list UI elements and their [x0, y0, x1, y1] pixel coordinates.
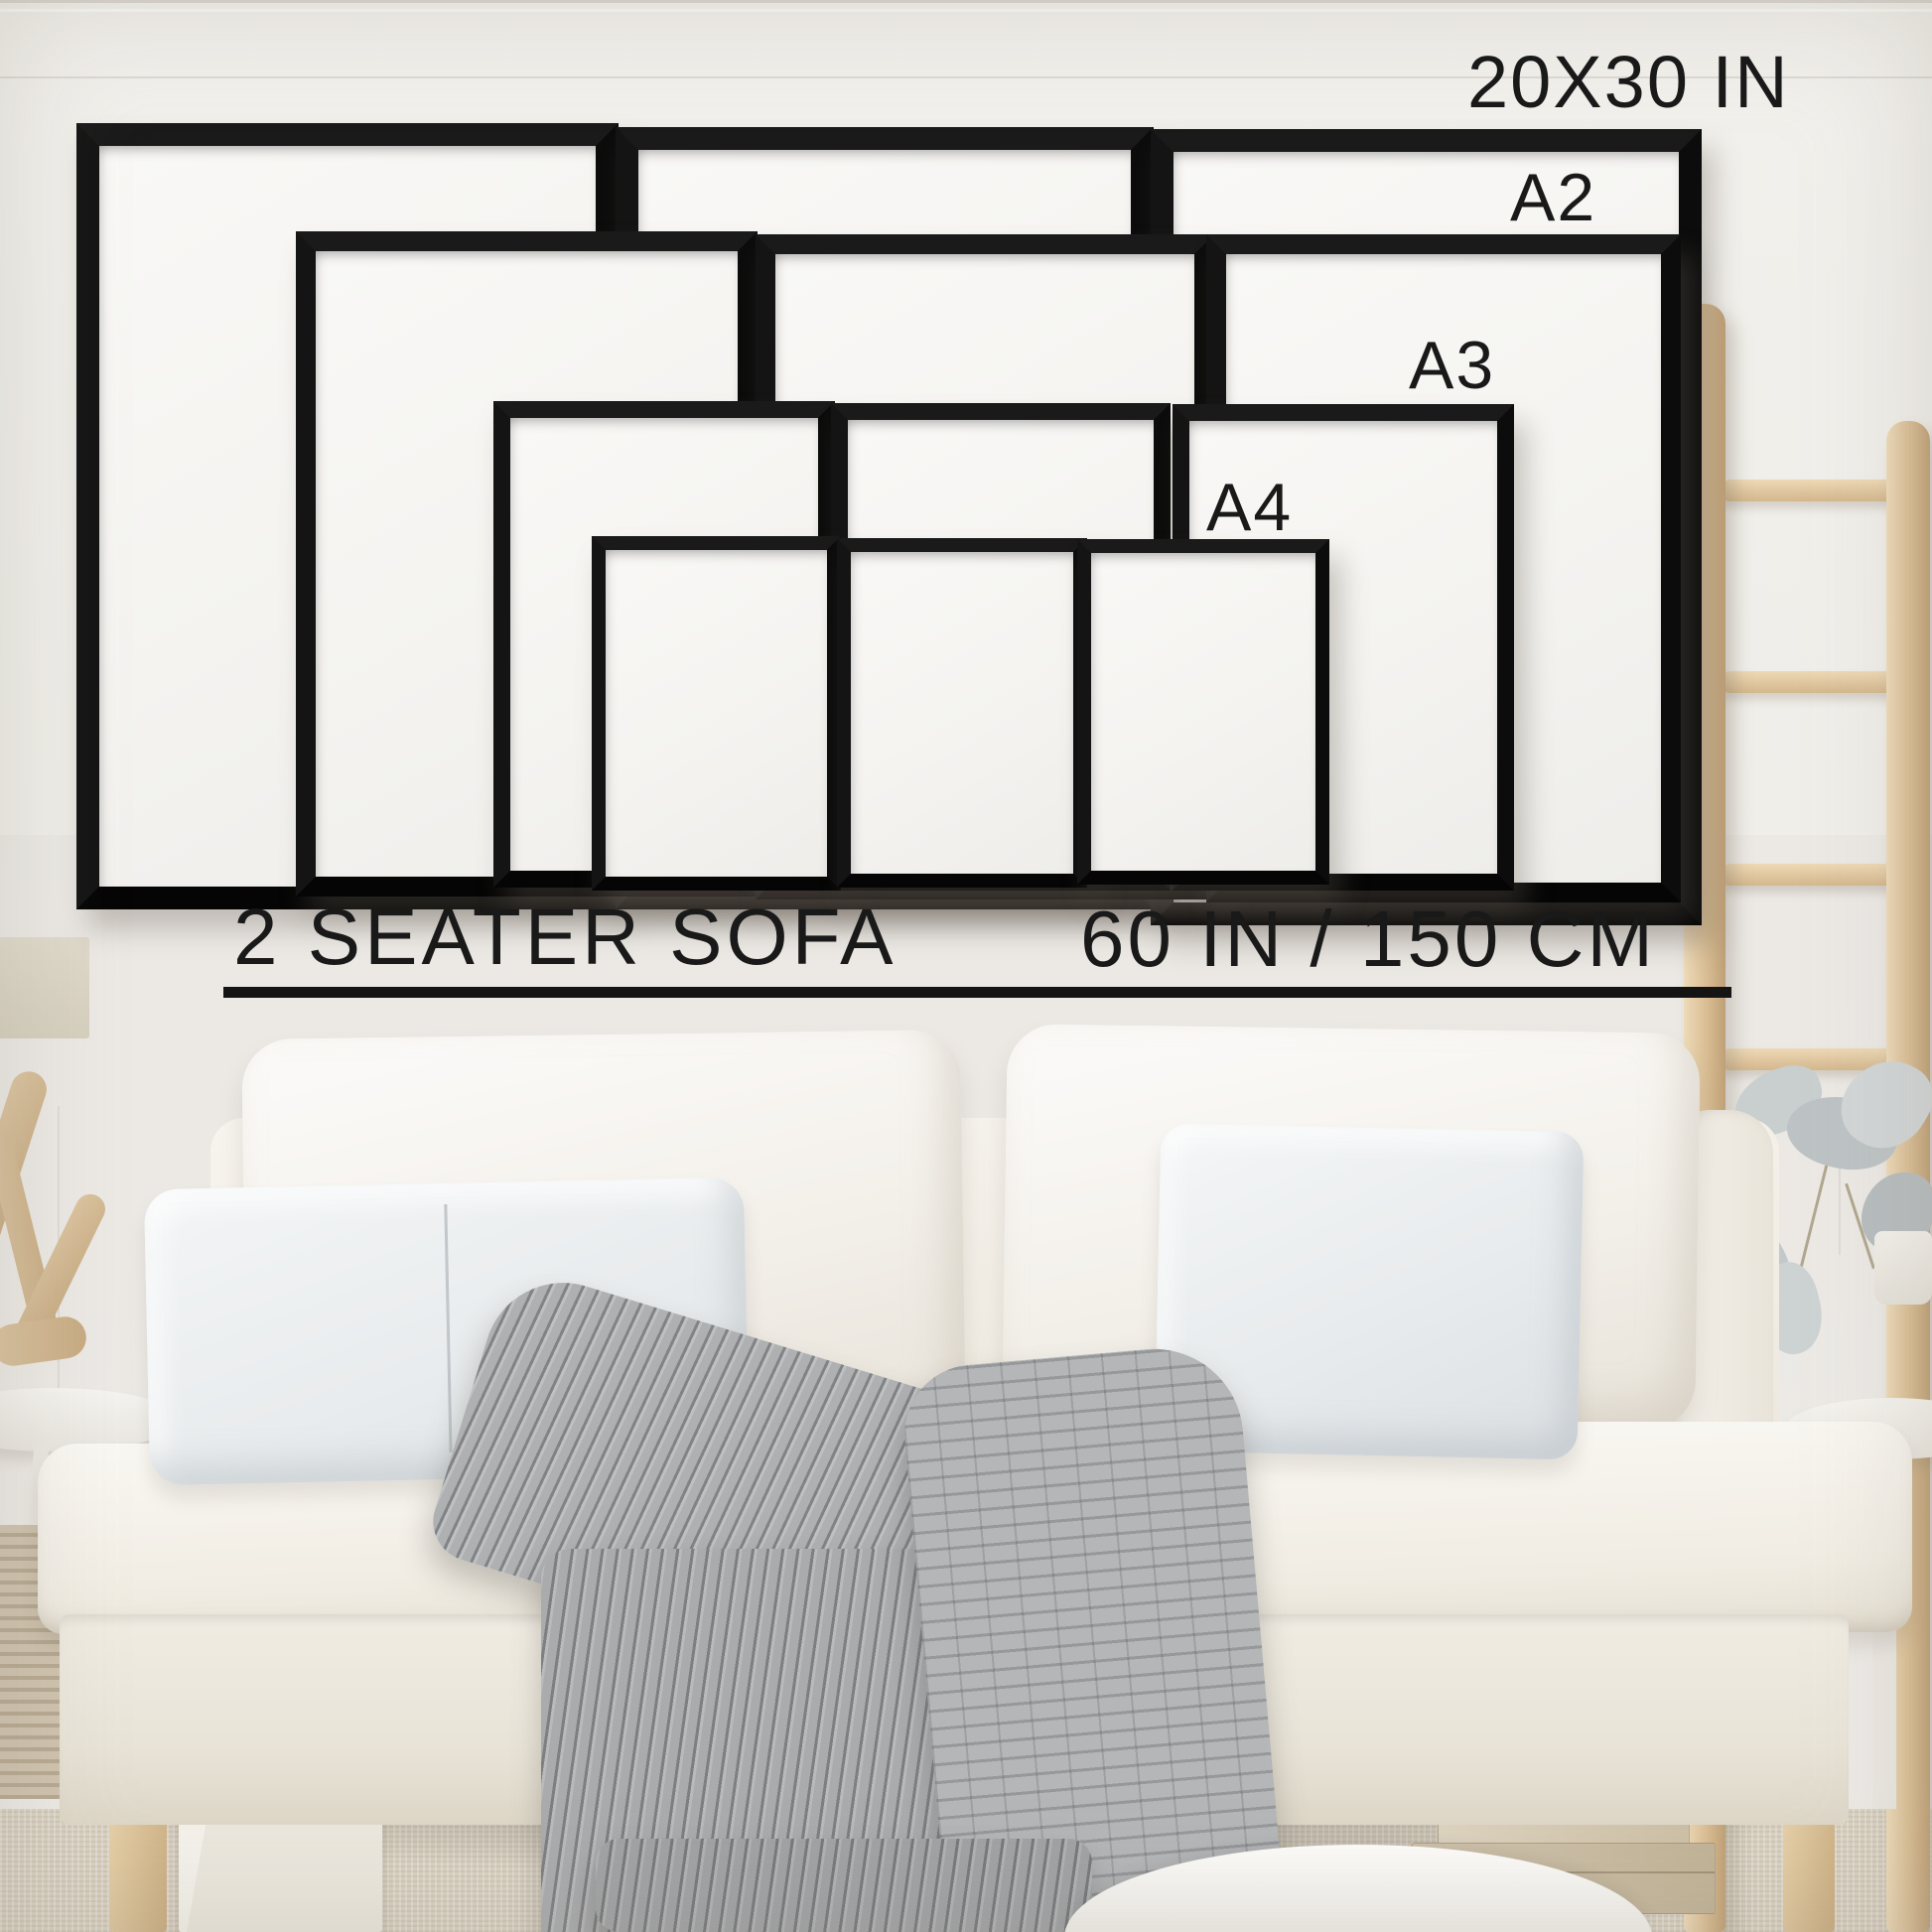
size-label-a3: A3	[1409, 332, 1495, 399]
sofa-label: 2 SEATER SOFA	[233, 897, 897, 977]
sofa-width-reference-line	[223, 987, 1731, 998]
size-label-20x30: 20X30 IN	[1467, 46, 1790, 119]
frame-a4-left	[592, 536, 841, 891]
ladder-rung	[1720, 480, 1904, 501]
ladder-rung	[1720, 864, 1904, 886]
ladder-rung	[1720, 671, 1904, 693]
sofa-width-label: 60 IN / 150 CM	[1080, 899, 1656, 979]
knitted-blanket-tail	[596, 1839, 1092, 1932]
frame-a4-right	[1077, 539, 1329, 885]
lamp-shade	[0, 937, 89, 1038]
scene: 20X30 IN A2 A3 A4 2 SEATER SOFA 60 IN / …	[0, 0, 1932, 1932]
size-label-a2: A2	[1510, 164, 1596, 231]
size-label-a4: A4	[1206, 474, 1293, 541]
white-vase	[1874, 1231, 1932, 1305]
driftwood-decor	[0, 1314, 88, 1369]
frame-a4-center	[837, 538, 1087, 888]
